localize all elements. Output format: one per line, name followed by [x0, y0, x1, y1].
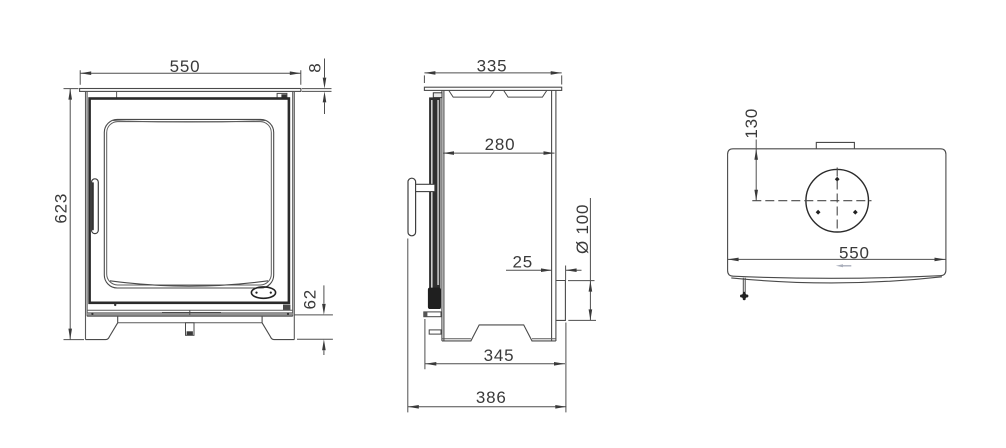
svg-text:386: 386	[476, 388, 507, 407]
svg-text:Ø 100: Ø 100	[573, 204, 592, 254]
svg-text:335: 335	[477, 57, 508, 76]
svg-text:623: 623	[52, 193, 71, 224]
svg-text:280: 280	[485, 135, 516, 154]
svg-text:8: 8	[306, 62, 325, 72]
svg-text:345: 345	[484, 346, 515, 365]
svg-text:62: 62	[301, 289, 320, 310]
svg-text:25: 25	[512, 253, 533, 272]
svg-text:550: 550	[839, 244, 870, 263]
svg-text:130: 130	[742, 108, 761, 139]
svg-text:550: 550	[170, 57, 201, 76]
